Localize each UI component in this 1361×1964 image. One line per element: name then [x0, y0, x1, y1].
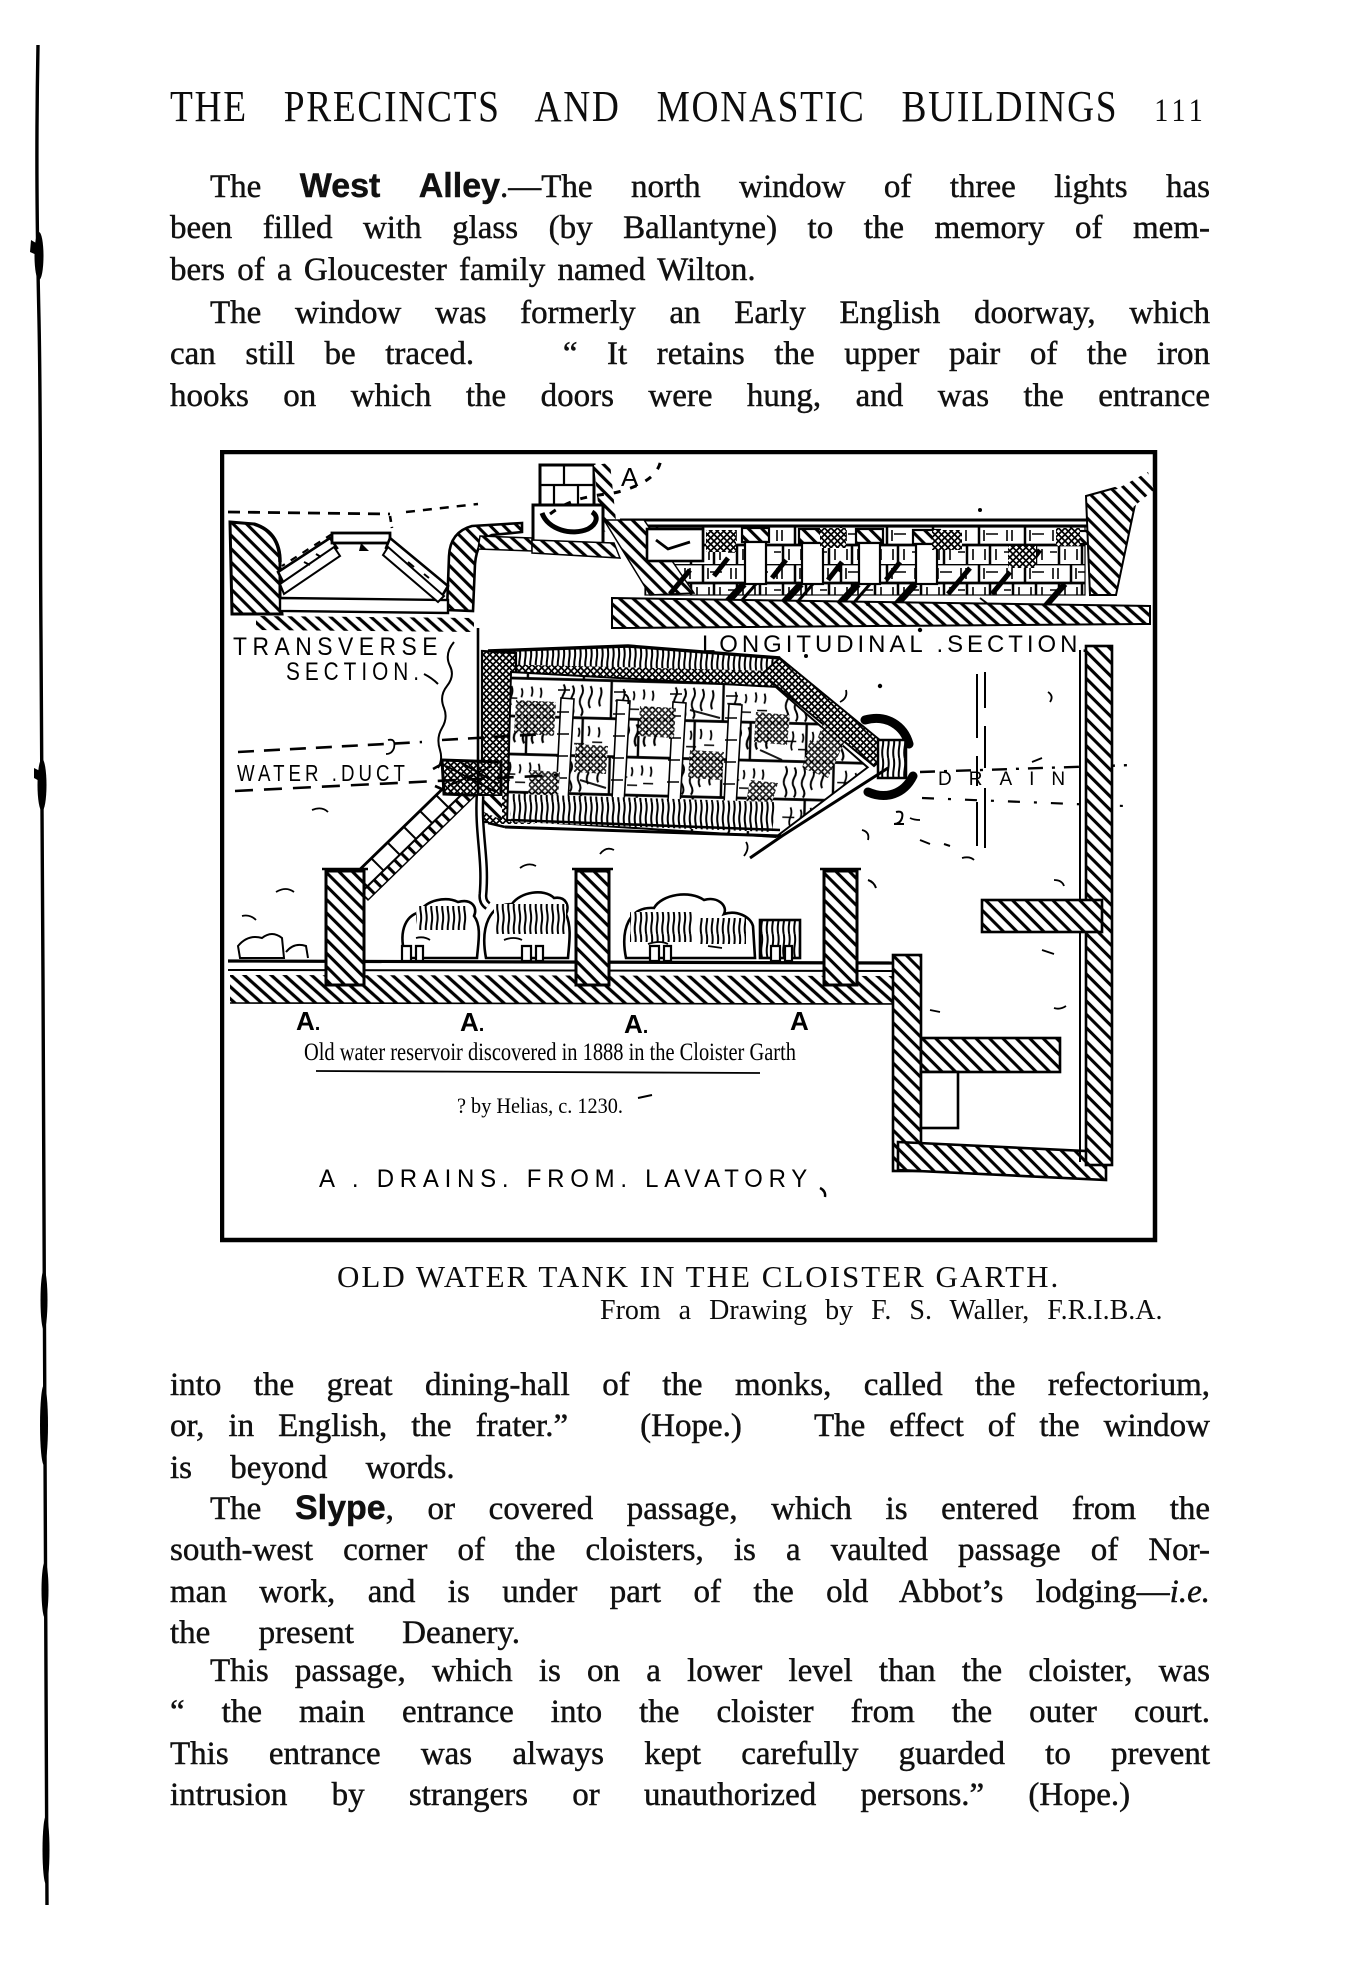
svg-text:A: A: [790, 1006, 809, 1036]
svg-text:Old water reservoir discovered: Old water reservoir discovered in 1888 i…: [304, 1039, 796, 1066]
svg-text:LONGITUDINAL .SECTION.: LONGITUDINAL .SECTION.: [702, 631, 1092, 658]
svg-text:A.: A.: [624, 1009, 648, 1039]
svg-text:? by Helias, c. 1230.: ? by Helias, c. 1230.: [457, 1093, 623, 1118]
svg-text:WATER .DUCT: WATER .DUCT: [237, 760, 409, 786]
svg-text:SECTION.: SECTION.: [286, 658, 424, 686]
svg-text:A.: A.: [296, 1006, 320, 1036]
svg-text:A . DRAINS. FROM. LAVATORY: A . DRAINS. FROM. LAVATORY: [319, 1165, 813, 1193]
svg-text:A.: A.: [460, 1007, 484, 1037]
svg-text:DRAIN: DRAIN: [938, 769, 1082, 790]
svg-text:TRANSVERSE: TRANSVERSE: [233, 633, 443, 661]
